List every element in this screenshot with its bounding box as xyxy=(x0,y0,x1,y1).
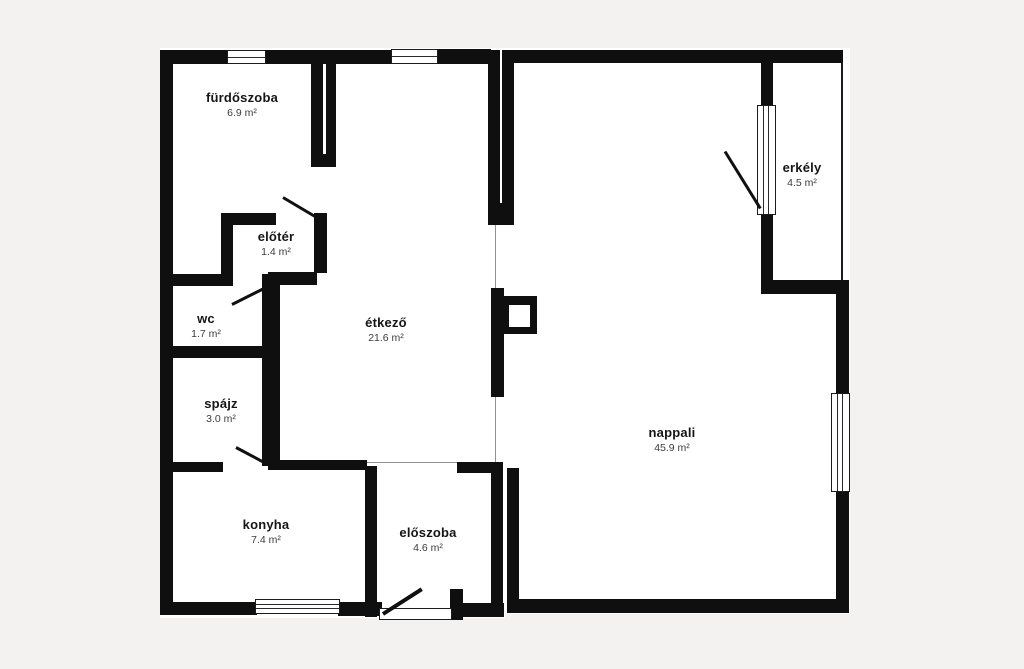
wall-segment xyxy=(160,50,228,64)
wall-segment xyxy=(365,466,377,617)
wall-segment xyxy=(338,602,382,616)
room-name: wc xyxy=(191,311,221,327)
window-kitchen xyxy=(255,599,340,614)
room-area: 7.4 m² xyxy=(243,533,290,548)
room-boundary-line xyxy=(495,397,496,462)
wall-segment xyxy=(491,462,503,617)
window-bathroom xyxy=(227,50,266,64)
window-dining xyxy=(391,49,438,64)
wall-segment xyxy=(502,63,514,213)
floor-right-block xyxy=(500,48,850,614)
wall-segment xyxy=(488,50,500,225)
room-name: fürdőszoba xyxy=(206,90,278,106)
wall-segment xyxy=(761,60,773,107)
wall-segment xyxy=(160,602,257,615)
room-label-furdoszoba: fürdőszoba 6.9 m² xyxy=(206,90,278,121)
wall-segment xyxy=(507,468,519,612)
room-name: előszoba xyxy=(399,525,456,541)
room-area: 1.4 m² xyxy=(258,245,295,260)
room-label-wc: wc 1.7 m² xyxy=(191,311,221,342)
room-name: étkező xyxy=(365,315,407,331)
wall-segment xyxy=(262,274,280,466)
wall-segment xyxy=(268,460,367,470)
wall-segment xyxy=(221,213,233,286)
room-name: nappali xyxy=(649,425,696,441)
wall-segment xyxy=(438,49,491,64)
wall-segment xyxy=(502,50,843,63)
room-area: 4.5 m² xyxy=(783,176,822,191)
room-label-eloszoba: előszoba 4.6 m² xyxy=(399,525,456,556)
wall-segment xyxy=(160,462,223,472)
room-name: spájz xyxy=(204,396,238,412)
room-boundary-line xyxy=(495,225,496,289)
room-name: konyha xyxy=(243,517,290,533)
wall-segment xyxy=(311,154,336,167)
wall-segment xyxy=(160,50,173,615)
room-area: 3.0 m² xyxy=(204,412,238,427)
chimney-pillar xyxy=(491,288,504,397)
wall-segment xyxy=(326,50,336,167)
room-area: 21.6 m² xyxy=(365,331,407,346)
floor-plan: fürdőszoba 6.9 m² előtér 1.4 m² wc 1.7 m… xyxy=(0,0,1024,669)
wall-segment xyxy=(761,213,773,283)
wall-segment xyxy=(311,50,323,167)
room-label-eloter: előtér 1.4 m² xyxy=(258,229,295,260)
room-area: 6.9 m² xyxy=(206,106,278,121)
wall-segment xyxy=(160,274,222,286)
window-living-room xyxy=(831,393,850,492)
room-area: 1.7 m² xyxy=(191,327,221,342)
room-area: 4.6 m² xyxy=(399,541,456,556)
room-area: 45.9 m² xyxy=(649,441,696,456)
balcony-door-window xyxy=(757,105,776,215)
wall-segment xyxy=(507,599,849,613)
room-label-etkezo: étkező 21.6 m² xyxy=(365,315,407,346)
room-name: előtér xyxy=(258,229,295,245)
room-boundary-line xyxy=(367,462,457,463)
wall-segment xyxy=(836,283,849,395)
room-label-nappali: nappali 45.9 m² xyxy=(649,425,696,456)
room-name: erkély xyxy=(783,160,822,176)
wall-segment xyxy=(314,213,327,273)
chimney-flue-opening xyxy=(509,305,530,327)
room-label-konyha: konyha 7.4 m² xyxy=(243,517,290,548)
wall-segment xyxy=(761,280,849,294)
room-label-spajz: spájz 3.0 m² xyxy=(204,396,238,427)
balcony-open-edge-line xyxy=(841,55,843,283)
wall-segment xyxy=(160,346,280,358)
wall-segment xyxy=(488,203,514,225)
room-label-erkely: erkély 4.5 m² xyxy=(783,160,822,191)
wall-segment xyxy=(836,490,849,613)
